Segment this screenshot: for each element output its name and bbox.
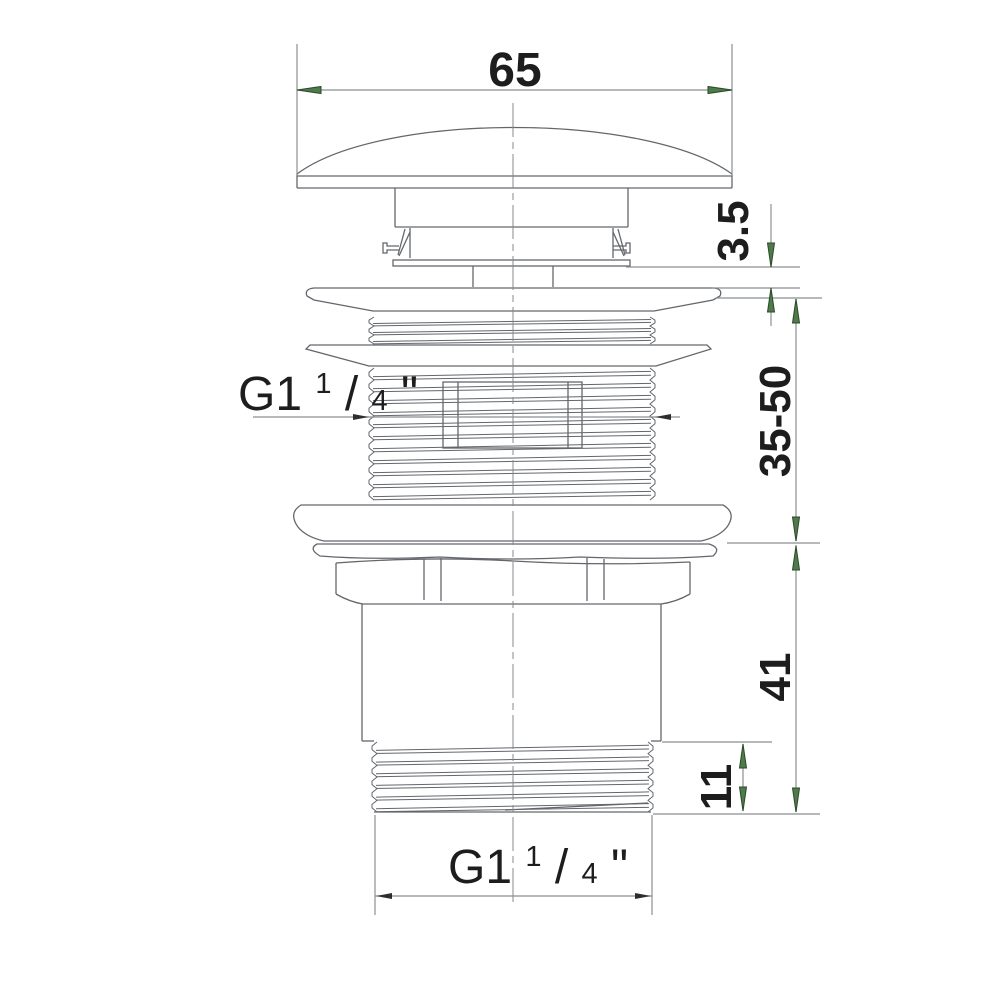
arrow-right-icon (708, 87, 732, 94)
arrow-down-icon (768, 243, 775, 267)
arrow-up-icon (793, 546, 800, 570)
thread-spec-quote: " (401, 368, 418, 421)
dim-text-flange-thickness: 3.5 (709, 200, 758, 261)
thread-line (650, 368, 655, 500)
arrow-left-icon (376, 893, 392, 899)
thread-spec-quote: " (611, 841, 628, 894)
dome-washer (294, 505, 732, 541)
thread-line (369, 317, 374, 344)
thread-section-upper (369, 317, 655, 344)
arrow-down-icon (793, 788, 800, 812)
thread-spec-numerator: 1 (525, 841, 541, 873)
arrow-left-icon (655, 414, 671, 420)
clip-pin-left (383, 243, 399, 253)
dimension-labels: 65 3.5 35-50 41 11 G1 1 / 4 " G1 1 / 4 " (238, 44, 800, 894)
arrow-up-icon (793, 299, 800, 323)
arrow-down-icon (793, 517, 800, 541)
thread-spec-prefix: G1 (238, 368, 302, 421)
technical-drawing-page: 65 3.5 35-50 41 11 G1 1 / 4 " G1 1 / 4 " (0, 0, 1000, 1000)
thread-spec-denominator: 4 (582, 858, 598, 890)
dim-text-body-height: 41 (751, 653, 800, 702)
rubber-seal (313, 544, 717, 559)
thread-spec-numerator: 1 (315, 368, 331, 400)
dim-text-clamping-range: 35-50 (751, 365, 800, 478)
slip-flange (306, 345, 711, 366)
thread-line (372, 742, 377, 812)
top-flange (306, 288, 720, 311)
thread-line (648, 742, 653, 812)
cap-plate (393, 260, 630, 266)
thread-spec-slash: / (345, 368, 359, 421)
thread-spec-side: G1 1 / 4 " (238, 351, 418, 421)
thread-spec-prefix: G1 (448, 841, 512, 894)
arrow-left-icon (297, 87, 321, 94)
arrow-right-icon (635, 893, 651, 899)
cap-dome-arc (297, 128, 732, 175)
thread-spec-slash: / (555, 841, 569, 894)
thread-spec-bottom: G1 1 / 4 " (448, 824, 628, 894)
thread-spec-denominator: 4 (372, 385, 388, 417)
basin-waste-drawing: 65 3.5 35-50 41 11 G1 1 / 4 " G1 1 / 4 " (0, 0, 1000, 1000)
arrow-up-icon (768, 288, 775, 312)
dim-text-cap-diameter: 65 (488, 44, 541, 97)
dim-text-thread-length: 11 (692, 764, 741, 811)
